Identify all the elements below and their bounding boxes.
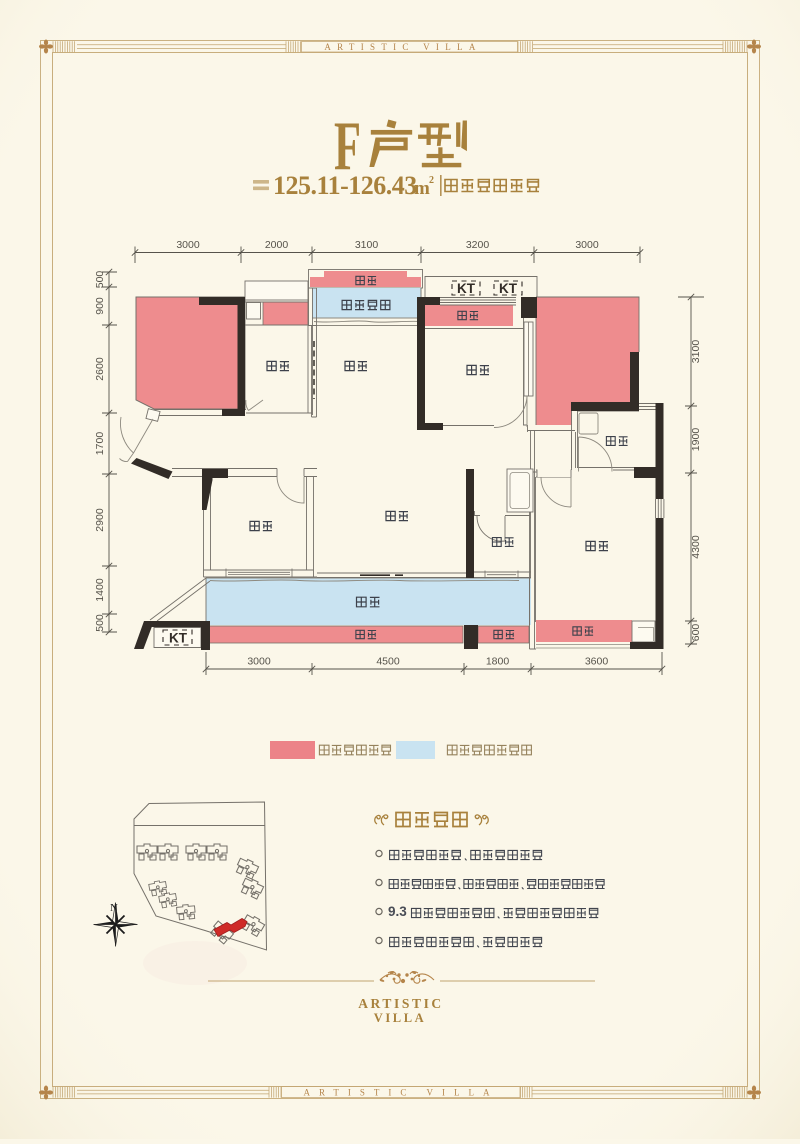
- svg-text:3100: 3100: [690, 340, 702, 364]
- svg-text:3200: 3200: [466, 239, 490, 251]
- svg-text:ARTISTIC VILLA: ARTISTIC VILLA: [324, 42, 481, 52]
- svg-text:2000: 2000: [265, 239, 289, 251]
- svg-text:KT: KT: [169, 631, 188, 646]
- svg-text:4300: 4300: [690, 535, 702, 559]
- svg-text:KT: KT: [457, 281, 476, 296]
- svg-text:1700: 1700: [94, 432, 106, 456]
- svg-text:KT: KT: [499, 281, 518, 296]
- svg-text:600: 600: [690, 624, 702, 642]
- svg-text:2900: 2900: [94, 508, 106, 532]
- svg-text:3000: 3000: [247, 656, 271, 668]
- svg-text:3000: 3000: [575, 239, 599, 251]
- svg-text:500: 500: [94, 271, 106, 289]
- svg-text:2600: 2600: [94, 357, 106, 381]
- svg-text:2: 2: [429, 175, 434, 186]
- svg-text:ARTISTIC VILLA: ARTISTIC VILLA: [303, 1088, 498, 1098]
- svg-text:3600: 3600: [585, 656, 609, 668]
- svg-text:1400: 1400: [94, 578, 106, 602]
- svg-text:1900: 1900: [690, 428, 702, 452]
- svg-text:m: m: [414, 178, 430, 199]
- svg-text:500: 500: [94, 614, 106, 632]
- svg-text:900: 900: [94, 297, 106, 315]
- svg-text:VILLA: VILLA: [374, 1011, 427, 1025]
- svg-text:9.3: 9.3: [388, 904, 407, 919]
- svg-text:N: N: [110, 902, 118, 914]
- svg-text:3100: 3100: [355, 239, 379, 251]
- svg-text:4500: 4500: [376, 656, 400, 668]
- svg-text:ARTISTIC: ARTISTIC: [358, 996, 444, 1011]
- svg-text:1800: 1800: [486, 656, 510, 668]
- svg-text:3000: 3000: [176, 239, 200, 251]
- svg-text:125.11-126.43: 125.11-126.43: [273, 171, 417, 200]
